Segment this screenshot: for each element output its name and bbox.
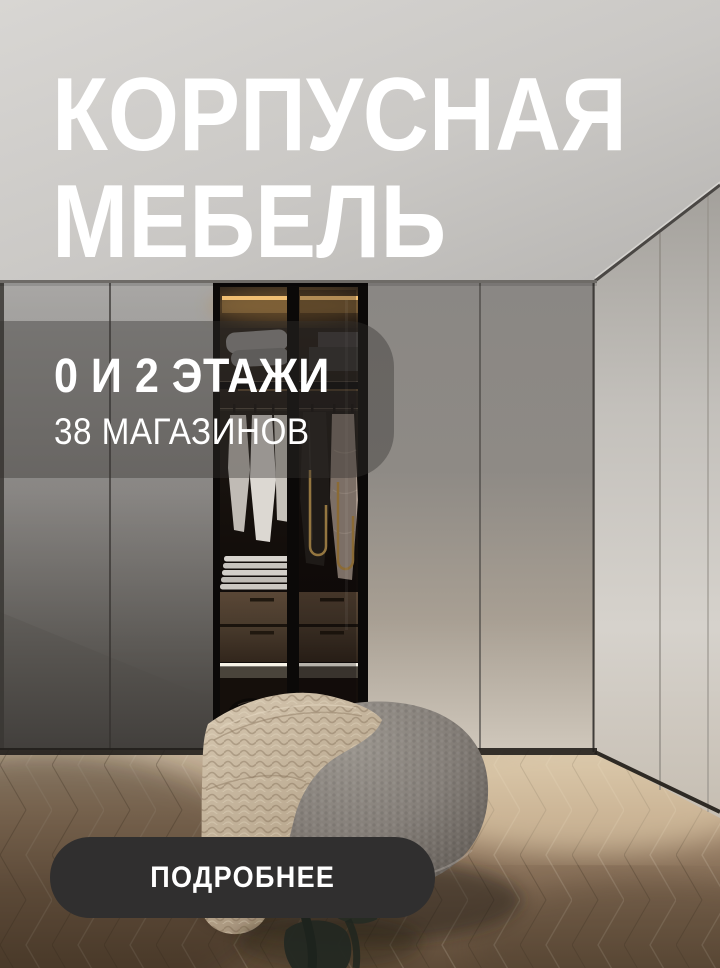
stores-count-text: 38 МАГАЗИНОВ	[54, 409, 360, 455]
promo-banner: КОРПУСНАЯ МЕБЕЛЬ 0 И 2 ЭТАЖИ 38 МАГАЗИНО…	[0, 0, 720, 968]
details-button-label: ПОДРОБНЕЕ	[150, 861, 335, 895]
banner-title-line1: КОРПУСНАЯ	[52, 62, 627, 169]
banner-title-line2: МЕБЕЛЬ	[52, 169, 627, 276]
details-button[interactable]: ПОДРОБНЕЕ	[50, 837, 435, 918]
side-wall	[595, 182, 720, 818]
info-badge: 0 И 2 ЭТАЖИ 38 МАГАЗИНОВ	[0, 321, 394, 478]
floors-text: 0 И 2 ЭТАЖИ	[54, 351, 360, 403]
banner-title: КОРПУСНАЯ МЕБЕЛЬ	[52, 62, 627, 276]
